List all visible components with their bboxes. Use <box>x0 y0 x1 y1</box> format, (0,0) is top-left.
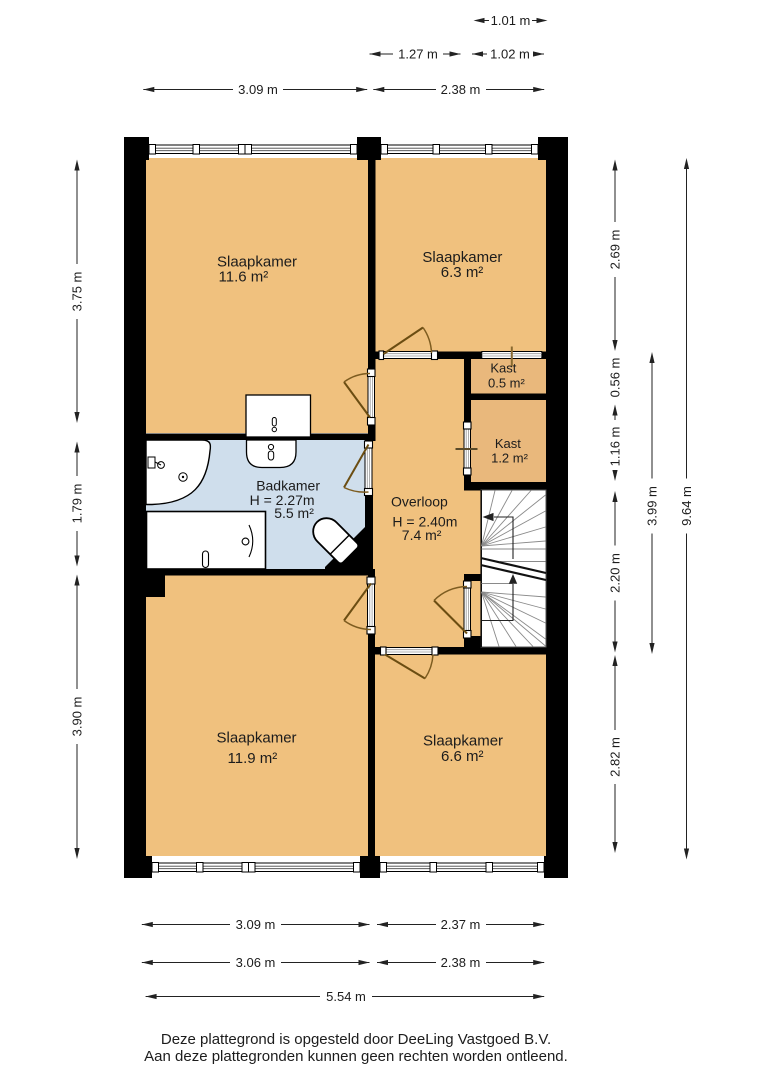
svg-text:1.27 m: 1.27 m <box>398 47 438 62</box>
svg-text:1.79 m: 1.79 m <box>70 484 85 524</box>
svg-text:2.37 m: 2.37 m <box>441 917 481 932</box>
svg-text:11.9 m²: 11.9 m² <box>228 750 278 767</box>
svg-text:3.06 m: 3.06 m <box>236 955 276 970</box>
svg-text:2.38 m: 2.38 m <box>441 82 481 97</box>
svg-text:Aan deze plattegronden kunnen: Aan deze plattegronden kunnen geen recht… <box>144 1048 568 1065</box>
svg-text:11.6 m²: 11.6 m² <box>219 268 269 285</box>
svg-text:3.99 m: 3.99 m <box>645 486 660 526</box>
svg-text:Deze plattegrond is opgesteld: Deze plattegrond is opgesteld door DeeLi… <box>161 1031 551 1048</box>
svg-text:Badkamer: Badkamer <box>256 477 320 493</box>
svg-text:0.5 m²: 0.5 m² <box>488 376 526 391</box>
svg-text:1.16 m: 1.16 m <box>608 427 623 467</box>
svg-text:1.2 m²: 1.2 m² <box>491 451 529 466</box>
svg-text:5.54 m: 5.54 m <box>326 989 366 1004</box>
svg-text:Slaapkamer: Slaapkamer <box>217 730 297 747</box>
svg-text:3.75 m: 3.75 m <box>70 272 85 312</box>
svg-text:2.69 m: 2.69 m <box>608 230 623 270</box>
svg-text:2.38 m: 2.38 m <box>441 955 481 970</box>
svg-text:Kast: Kast <box>490 361 516 376</box>
svg-text:2.82 m: 2.82 m <box>608 737 623 777</box>
svg-text:3.90 m: 3.90 m <box>70 697 85 737</box>
svg-text:7.4 m²: 7.4 m² <box>402 527 442 543</box>
svg-text:3.09 m: 3.09 m <box>238 82 278 97</box>
svg-text:6.3 m²: 6.3 m² <box>441 264 484 281</box>
svg-text:0.56 m: 0.56 m <box>608 358 623 398</box>
svg-text:Overloop: Overloop <box>391 494 448 510</box>
svg-text:9.64 m: 9.64 m <box>679 486 694 526</box>
svg-text:6.6 m²: 6.6 m² <box>441 748 484 765</box>
svg-text:2.20 m: 2.20 m <box>608 553 623 593</box>
svg-text:1.01 m: 1.01 m <box>491 13 531 28</box>
svg-text:Slaapkamer: Slaapkamer <box>423 733 503 750</box>
svg-text:Kast: Kast <box>495 436 521 451</box>
svg-text:1.02 m: 1.02 m <box>490 47 530 62</box>
svg-text:3.09 m: 3.09 m <box>236 917 276 932</box>
svg-text:5.5 m²: 5.5 m² <box>274 505 314 521</box>
